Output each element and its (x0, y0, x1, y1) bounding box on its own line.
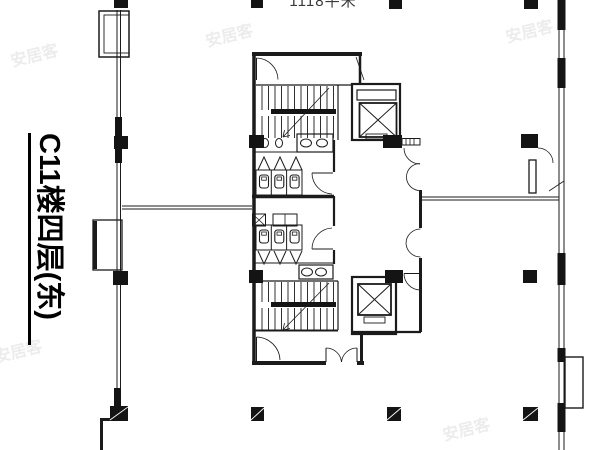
structural-columns (110, 0, 538, 421)
floor-plan-canvas: 安居客 安居客 安居客 安居客 安居客 1118平米 C11楼四层(东) (0, 0, 600, 450)
urinal (276, 139, 283, 148)
column (524, 0, 538, 9)
east-partition (422, 148, 564, 200)
column (251, 0, 263, 8)
window-bay (565, 357, 583, 408)
stall-partition (258, 251, 302, 264)
restroom-men (254, 134, 334, 195)
door-jamb (529, 160, 536, 193)
column (389, 0, 402, 9)
column (113, 271, 128, 285)
core-east-side (402, 139, 421, 333)
restroom-women (253, 214, 335, 279)
elevator-upper (352, 84, 402, 148)
urinal-partition (258, 157, 302, 170)
double-door (406, 229, 421, 257)
column (523, 270, 537, 283)
staircase-upper (256, 85, 352, 140)
window-bay (93, 220, 122, 270)
toilet-stalls (256, 225, 302, 250)
vent-grille (402, 139, 420, 146)
column (521, 134, 538, 148)
toilet-stalls (256, 170, 302, 195)
staircase-lower (253, 281, 338, 331)
floor-plan-drawing (0, 0, 600, 450)
column (114, 136, 128, 149)
elevator-lower (352, 270, 403, 334)
double-door (407, 164, 421, 191)
window-bay (99, 11, 129, 57)
column (114, 0, 128, 8)
lobby-doors (257, 337, 358, 362)
